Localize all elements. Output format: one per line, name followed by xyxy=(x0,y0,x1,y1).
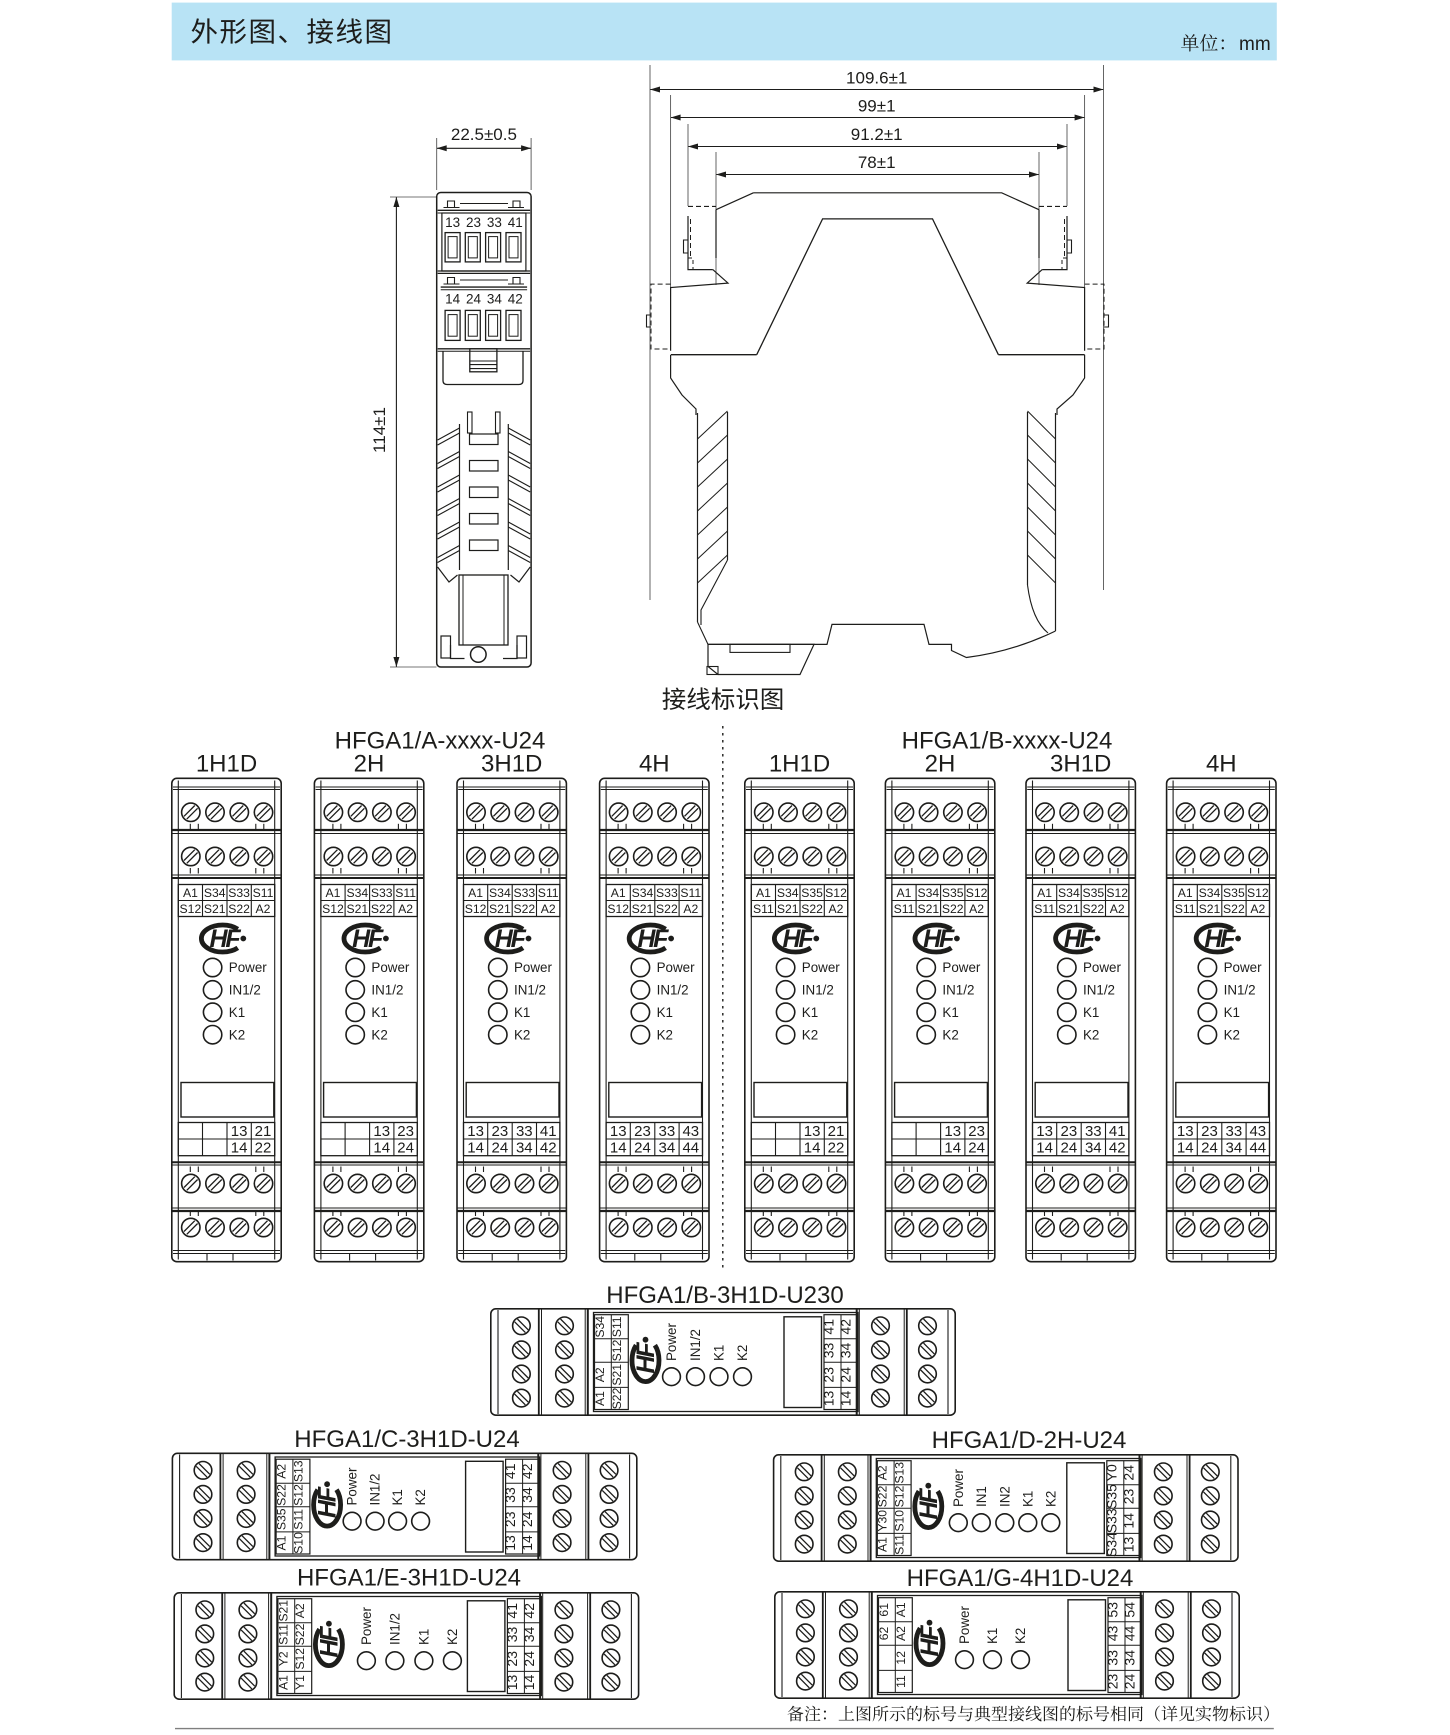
svg-text:Power: Power xyxy=(664,1323,679,1361)
svg-text:S21: S21 xyxy=(204,902,226,916)
svg-text:23: 23 xyxy=(1105,1674,1121,1690)
svg-text:22.5±0.5: 22.5±0.5 xyxy=(451,125,517,144)
svg-text:Power: Power xyxy=(345,1467,360,1505)
svg-text:53: 53 xyxy=(1105,1602,1121,1618)
svg-text:S12: S12 xyxy=(291,1484,305,1506)
svg-text:S12: S12 xyxy=(293,1648,307,1670)
svg-text:S22: S22 xyxy=(371,902,393,916)
svg-text:S21: S21 xyxy=(917,902,939,916)
svg-text:22: 22 xyxy=(255,1139,272,1156)
svg-text:34: 34 xyxy=(519,1487,535,1503)
svg-text:K2: K2 xyxy=(413,1489,428,1505)
svg-text:Power: Power xyxy=(229,960,267,975)
svg-text:43: 43 xyxy=(682,1123,699,1140)
svg-text:Power: Power xyxy=(514,960,552,975)
svg-text:S11: S11 xyxy=(291,1509,305,1530)
svg-text:34: 34 xyxy=(659,1139,676,1156)
svg-text:S12: S12 xyxy=(607,902,629,916)
svg-text:HF: HF xyxy=(352,925,384,953)
svg-text:S22: S22 xyxy=(275,1484,289,1506)
svg-text:A2: A2 xyxy=(256,902,271,916)
svg-text:HF: HF xyxy=(783,925,815,953)
svg-text:41: 41 xyxy=(502,1463,518,1479)
svg-text:24: 24 xyxy=(968,1139,985,1156)
svg-text:S35: S35 xyxy=(801,886,823,900)
svg-text:S12: S12 xyxy=(610,1339,624,1361)
svg-text:S13: S13 xyxy=(291,1460,305,1482)
svg-text:HF: HF xyxy=(316,1626,344,1658)
svg-text:K2: K2 xyxy=(371,1027,387,1042)
svg-text:23: 23 xyxy=(1201,1123,1218,1140)
svg-text:S12: S12 xyxy=(825,886,847,900)
svg-text:K1: K1 xyxy=(514,1005,530,1020)
svg-text:IN1/2: IN1/2 xyxy=(657,983,689,998)
svg-text:S22: S22 xyxy=(876,1485,890,1507)
svg-text:14: 14 xyxy=(1036,1139,1053,1156)
svg-text:S10: S10 xyxy=(291,1532,305,1554)
svg-text:S22: S22 xyxy=(228,902,250,916)
svg-text:K1: K1 xyxy=(802,1005,818,1020)
svg-text:K1: K1 xyxy=(1020,1491,1035,1507)
svg-text:42: 42 xyxy=(519,1463,535,1479)
svg-text:14: 14 xyxy=(231,1139,248,1156)
svg-text:IN1/2: IN1/2 xyxy=(1083,983,1115,998)
svg-text:K2: K2 xyxy=(735,1345,750,1361)
svg-text:Y1: Y1 xyxy=(293,1675,307,1690)
svg-text:41: 41 xyxy=(504,1603,520,1619)
svg-text:A1: A1 xyxy=(611,886,626,900)
svg-text:42: 42 xyxy=(521,1603,537,1619)
svg-text:K2: K2 xyxy=(802,1027,818,1042)
svg-text:78±1: 78±1 xyxy=(858,153,896,172)
svg-text:mm: mm xyxy=(1239,34,1271,55)
svg-text:K1: K1 xyxy=(712,1345,727,1361)
svg-text:23: 23 xyxy=(634,1123,651,1140)
svg-text:42: 42 xyxy=(540,1139,557,1156)
svg-text:A2: A2 xyxy=(683,902,698,916)
svg-text:33: 33 xyxy=(1226,1123,1243,1140)
svg-text:14: 14 xyxy=(445,292,461,307)
svg-text:K1: K1 xyxy=(942,1005,958,1020)
svg-text:S10: S10 xyxy=(893,1510,907,1532)
svg-text:A1: A1 xyxy=(897,886,912,900)
svg-text:HF: HF xyxy=(1064,925,1096,953)
svg-text:S35: S35 xyxy=(1223,886,1245,900)
svg-text:24: 24 xyxy=(838,1367,854,1383)
svg-text:34: 34 xyxy=(1085,1139,1102,1156)
svg-text:S22: S22 xyxy=(1223,902,1245,916)
svg-text:S34: S34 xyxy=(204,886,226,900)
svg-text:14: 14 xyxy=(944,1139,961,1156)
svg-text:S22: S22 xyxy=(1082,902,1104,916)
svg-text:K2: K2 xyxy=(942,1027,958,1042)
svg-text:Power: Power xyxy=(1224,960,1262,975)
svg-text:S11: S11 xyxy=(894,902,915,916)
svg-text:Power: Power xyxy=(359,1607,374,1645)
svg-text:S33: S33 xyxy=(656,886,678,900)
svg-text:23: 23 xyxy=(504,1651,520,1667)
svg-text:A1: A1 xyxy=(876,1537,890,1552)
svg-text:HF: HF xyxy=(632,1342,660,1374)
svg-text:S22: S22 xyxy=(293,1623,307,1645)
svg-text:A1: A1 xyxy=(1037,886,1052,900)
svg-text:99±1: 99±1 xyxy=(858,97,896,116)
svg-text:S22: S22 xyxy=(656,902,678,916)
svg-text:13: 13 xyxy=(1036,1123,1053,1140)
svg-text:S35: S35 xyxy=(942,886,964,900)
svg-text:S34: S34 xyxy=(1058,886,1080,900)
svg-text:S11: S11 xyxy=(1034,902,1055,916)
svg-text:24: 24 xyxy=(466,292,482,307)
svg-text:24: 24 xyxy=(1122,1674,1138,1690)
svg-text:44: 44 xyxy=(682,1139,699,1156)
svg-text:41: 41 xyxy=(540,1123,557,1140)
svg-text:S35: S35 xyxy=(1082,886,1104,900)
svg-text:S34: S34 xyxy=(593,1316,607,1338)
svg-text:54: 54 xyxy=(1122,1602,1138,1618)
svg-text:14: 14 xyxy=(467,1139,484,1156)
svg-text:23: 23 xyxy=(1061,1123,1078,1140)
svg-text:A1: A1 xyxy=(183,886,198,900)
svg-text:Power: Power xyxy=(957,1606,972,1644)
svg-text:Y2: Y2 xyxy=(276,1651,290,1666)
svg-text:K1: K1 xyxy=(1224,1005,1240,1020)
svg-text:62: 62 xyxy=(877,1627,891,1641)
svg-text:HFGA1/D-2H-U24: HFGA1/D-2H-U24 xyxy=(932,1427,1127,1454)
svg-text:S34: S34 xyxy=(346,886,368,900)
svg-text:S22: S22 xyxy=(513,902,535,916)
svg-text:Power: Power xyxy=(802,960,840,975)
svg-text:14: 14 xyxy=(838,1391,854,1407)
svg-text:S11: S11 xyxy=(610,1316,624,1337)
svg-text:Y0: Y0 xyxy=(1103,1464,1119,1481)
svg-text:S22: S22 xyxy=(610,1387,624,1409)
svg-text:Power: Power xyxy=(942,960,980,975)
svg-text:A1: A1 xyxy=(894,1602,908,1617)
svg-text:A1: A1 xyxy=(276,1675,290,1690)
svg-text:S11: S11 xyxy=(253,886,274,900)
svg-text:12: 12 xyxy=(894,1651,908,1665)
svg-text:S21: S21 xyxy=(1199,902,1221,916)
svg-text:S35: S35 xyxy=(1103,1484,1119,1509)
svg-text:A2: A2 xyxy=(593,1367,607,1382)
svg-text:K2: K2 xyxy=(1013,1628,1028,1644)
svg-text:Power: Power xyxy=(951,1469,966,1507)
svg-text:Power: Power xyxy=(657,960,695,975)
svg-text:114±1: 114±1 xyxy=(370,407,389,453)
svg-text:S11: S11 xyxy=(893,1534,907,1555)
svg-text:HFGA1/E-3H1D-U24: HFGA1/E-3H1D-U24 xyxy=(297,1565,521,1592)
svg-text:IN1: IN1 xyxy=(974,1486,989,1507)
svg-text:K2: K2 xyxy=(1083,1027,1099,1042)
svg-text:13: 13 xyxy=(804,1123,821,1140)
svg-text:A2: A2 xyxy=(876,1465,890,1480)
svg-text:23: 23 xyxy=(466,215,481,230)
svg-text:IN1/2: IN1/2 xyxy=(942,983,974,998)
svg-text:34: 34 xyxy=(521,1627,537,1643)
svg-text:S34: S34 xyxy=(489,886,511,900)
svg-text:S21: S21 xyxy=(632,902,654,916)
svg-text:S12: S12 xyxy=(1106,886,1128,900)
svg-text:IN1/2: IN1/2 xyxy=(802,983,834,998)
svg-text:41: 41 xyxy=(1109,1123,1126,1140)
svg-text:109.6±1: 109.6±1 xyxy=(846,69,907,88)
svg-text:33: 33 xyxy=(487,215,502,230)
svg-text:S33: S33 xyxy=(228,886,250,900)
svg-text:HFGA1/B-3H1D-U230: HFGA1/B-3H1D-U230 xyxy=(606,1282,843,1309)
svg-text:A1: A1 xyxy=(1178,886,1193,900)
svg-text:34: 34 xyxy=(487,292,503,307)
svg-text:23: 23 xyxy=(821,1367,837,1383)
svg-text:33: 33 xyxy=(516,1123,533,1140)
svg-text:13: 13 xyxy=(231,1123,248,1140)
svg-text:IN1/2: IN1/2 xyxy=(368,1473,383,1505)
svg-text:14: 14 xyxy=(1120,1513,1136,1529)
svg-text:S22: S22 xyxy=(801,902,823,916)
svg-text:14: 14 xyxy=(610,1139,627,1156)
svg-text:IN1/2: IN1/2 xyxy=(229,983,261,998)
svg-text:A1: A1 xyxy=(593,1391,607,1406)
svg-text:S21: S21 xyxy=(346,902,368,916)
svg-text:42: 42 xyxy=(838,1319,854,1335)
svg-text:K2: K2 xyxy=(445,1629,460,1645)
svg-text:K1: K1 xyxy=(416,1629,431,1645)
svg-text:23: 23 xyxy=(502,1511,518,1527)
svg-text:S21: S21 xyxy=(1058,902,1080,916)
svg-text:13: 13 xyxy=(445,215,460,230)
svg-text:S34: S34 xyxy=(1199,886,1221,900)
svg-text:13: 13 xyxy=(502,1535,518,1551)
svg-text:IN1/2: IN1/2 xyxy=(1224,983,1256,998)
svg-text:K1: K1 xyxy=(371,1005,387,1020)
svg-text:24: 24 xyxy=(1061,1139,1078,1156)
svg-text:44: 44 xyxy=(1122,1626,1138,1642)
svg-text:Power: Power xyxy=(1083,960,1121,975)
svg-text:S11: S11 xyxy=(395,886,416,900)
svg-text:S34: S34 xyxy=(917,886,939,900)
svg-text:14: 14 xyxy=(373,1139,390,1156)
svg-text:S12: S12 xyxy=(322,902,344,916)
svg-text:K1: K1 xyxy=(390,1489,405,1505)
svg-text:13: 13 xyxy=(1120,1537,1136,1553)
svg-text:K1: K1 xyxy=(657,1005,673,1020)
svg-text:42: 42 xyxy=(1109,1139,1126,1156)
svg-text:A2: A2 xyxy=(398,902,413,916)
svg-text:1H1D: 1H1D xyxy=(769,751,830,778)
svg-text:23: 23 xyxy=(1120,1489,1136,1505)
svg-text:K1: K1 xyxy=(229,1005,245,1020)
svg-text:A1: A1 xyxy=(756,886,771,900)
svg-text:24: 24 xyxy=(397,1139,414,1156)
svg-text:24: 24 xyxy=(634,1139,651,1156)
svg-text:S34: S34 xyxy=(1103,1532,1119,1557)
svg-text:S35: S35 xyxy=(275,1508,289,1530)
svg-text:24: 24 xyxy=(492,1139,509,1156)
svg-text:43: 43 xyxy=(1249,1123,1266,1140)
svg-text:A2: A2 xyxy=(1250,902,1265,916)
svg-text:K2: K2 xyxy=(514,1027,530,1042)
svg-text:S33: S33 xyxy=(513,886,535,900)
svg-text:Y30: Y30 xyxy=(876,1510,890,1532)
svg-text:A2: A2 xyxy=(894,1626,908,1641)
svg-text:S11: S11 xyxy=(680,886,701,900)
svg-text:22: 22 xyxy=(828,1139,845,1156)
svg-text:13: 13 xyxy=(373,1123,390,1140)
svg-text:3H1D: 3H1D xyxy=(1050,751,1111,778)
svg-text:S12: S12 xyxy=(893,1485,907,1507)
svg-text:34: 34 xyxy=(1226,1139,1243,1156)
svg-text:IN2: IN2 xyxy=(997,1486,1012,1507)
svg-text:4H: 4H xyxy=(1206,751,1237,778)
svg-text:41: 41 xyxy=(508,215,523,230)
svg-text:IN1/2: IN1/2 xyxy=(514,983,546,998)
svg-text:HFGA1/C-3H1D-U24: HFGA1/C-3H1D-U24 xyxy=(294,1426,519,1453)
svg-text:S21: S21 xyxy=(777,902,799,916)
svg-text:2H: 2H xyxy=(925,751,956,778)
svg-text:24: 24 xyxy=(1120,1465,1136,1481)
svg-text:33: 33 xyxy=(821,1343,837,1359)
svg-text:S11: S11 xyxy=(753,902,774,916)
svg-text:A1: A1 xyxy=(326,886,341,900)
svg-text:IN1/2: IN1/2 xyxy=(688,1329,703,1361)
svg-text:13: 13 xyxy=(610,1123,627,1140)
svg-text:44: 44 xyxy=(1249,1139,1266,1156)
svg-text:33: 33 xyxy=(659,1123,676,1140)
svg-text:33: 33 xyxy=(504,1627,520,1643)
svg-text:HF: HF xyxy=(314,1486,342,1518)
svg-text:4H: 4H xyxy=(639,751,670,778)
svg-text:14: 14 xyxy=(519,1535,535,1551)
svg-text:23: 23 xyxy=(968,1123,985,1140)
svg-text:S12: S12 xyxy=(966,886,988,900)
svg-text:43: 43 xyxy=(1105,1626,1121,1642)
svg-text:13: 13 xyxy=(504,1675,520,1691)
svg-text:33: 33 xyxy=(502,1487,518,1503)
svg-text:34: 34 xyxy=(838,1343,854,1359)
svg-text:S21: S21 xyxy=(489,902,511,916)
svg-text:3H1D: 3H1D xyxy=(481,751,542,778)
svg-text:HF: HF xyxy=(1204,925,1236,953)
svg-text:A2: A2 xyxy=(1110,902,1125,916)
svg-text:S11: S11 xyxy=(1175,902,1196,916)
svg-text:HF: HF xyxy=(923,925,955,953)
svg-text:34: 34 xyxy=(516,1139,533,1156)
svg-text:1H1D: 1H1D xyxy=(196,751,257,778)
svg-text:K1: K1 xyxy=(1083,1005,1099,1020)
svg-text:HFGA1/G-4H1D-U24: HFGA1/G-4H1D-U24 xyxy=(907,1565,1134,1592)
svg-text:41: 41 xyxy=(821,1319,837,1335)
svg-text:S21: S21 xyxy=(610,1364,624,1386)
svg-text:HF: HF xyxy=(916,1625,944,1657)
svg-text:A2: A2 xyxy=(541,902,556,916)
svg-text:S33: S33 xyxy=(1103,1508,1119,1533)
svg-text:Power: Power xyxy=(371,960,409,975)
svg-text:42: 42 xyxy=(508,292,523,307)
svg-text:13: 13 xyxy=(1177,1123,1194,1140)
svg-text:IN1/2: IN1/2 xyxy=(371,983,403,998)
svg-text:S12: S12 xyxy=(1247,886,1269,900)
svg-text:91.2±1: 91.2±1 xyxy=(851,125,903,144)
svg-text:33: 33 xyxy=(1085,1123,1102,1140)
svg-text:IN1/2: IN1/2 xyxy=(387,1613,402,1645)
svg-text:61: 61 xyxy=(877,1603,891,1617)
svg-text:13: 13 xyxy=(821,1391,837,1407)
svg-text:A1: A1 xyxy=(275,1535,289,1550)
svg-text:2H: 2H xyxy=(354,751,385,778)
svg-text:HF: HF xyxy=(637,925,669,953)
svg-text:13: 13 xyxy=(467,1123,484,1140)
svg-text:K1: K1 xyxy=(985,1628,1000,1644)
svg-text:K2: K2 xyxy=(657,1027,673,1042)
svg-text:13: 13 xyxy=(944,1123,961,1140)
svg-text:A2: A2 xyxy=(275,1464,289,1479)
svg-text:21: 21 xyxy=(255,1123,272,1140)
svg-text:33: 33 xyxy=(1105,1650,1121,1666)
svg-text:A1: A1 xyxy=(468,886,483,900)
svg-text:S12: S12 xyxy=(465,902,487,916)
svg-text:K2: K2 xyxy=(1224,1027,1240,1042)
svg-text:24: 24 xyxy=(1201,1139,1218,1156)
svg-text:21: 21 xyxy=(828,1123,845,1140)
svg-text:A2: A2 xyxy=(969,902,984,916)
svg-text:S33: S33 xyxy=(371,886,393,900)
svg-text:S13: S13 xyxy=(893,1462,907,1484)
svg-text:K2: K2 xyxy=(229,1027,245,1042)
svg-text:S12: S12 xyxy=(180,902,202,916)
svg-text:23: 23 xyxy=(397,1123,414,1140)
svg-text:23: 23 xyxy=(492,1123,509,1140)
svg-text:14: 14 xyxy=(1177,1139,1194,1156)
svg-text:A2: A2 xyxy=(829,902,844,916)
svg-text:S34: S34 xyxy=(777,886,799,900)
svg-text:S11: S11 xyxy=(276,1624,290,1645)
svg-text:S22: S22 xyxy=(942,902,964,916)
svg-text:K2: K2 xyxy=(1043,1491,1058,1507)
svg-text:HF: HF xyxy=(915,1488,943,1520)
svg-text:34: 34 xyxy=(1122,1650,1138,1666)
svg-text:S11: S11 xyxy=(538,886,559,900)
svg-text:S34: S34 xyxy=(632,886,654,900)
svg-text:11: 11 xyxy=(894,1675,908,1688)
svg-text:A2: A2 xyxy=(293,1603,307,1618)
svg-text:HF: HF xyxy=(495,925,527,953)
svg-text:24: 24 xyxy=(521,1651,537,1667)
svg-text:14: 14 xyxy=(521,1675,537,1691)
svg-text:14: 14 xyxy=(804,1139,821,1156)
svg-text:S21: S21 xyxy=(276,1600,290,1622)
svg-text:HF: HF xyxy=(210,925,242,953)
svg-text:24: 24 xyxy=(519,1511,535,1527)
